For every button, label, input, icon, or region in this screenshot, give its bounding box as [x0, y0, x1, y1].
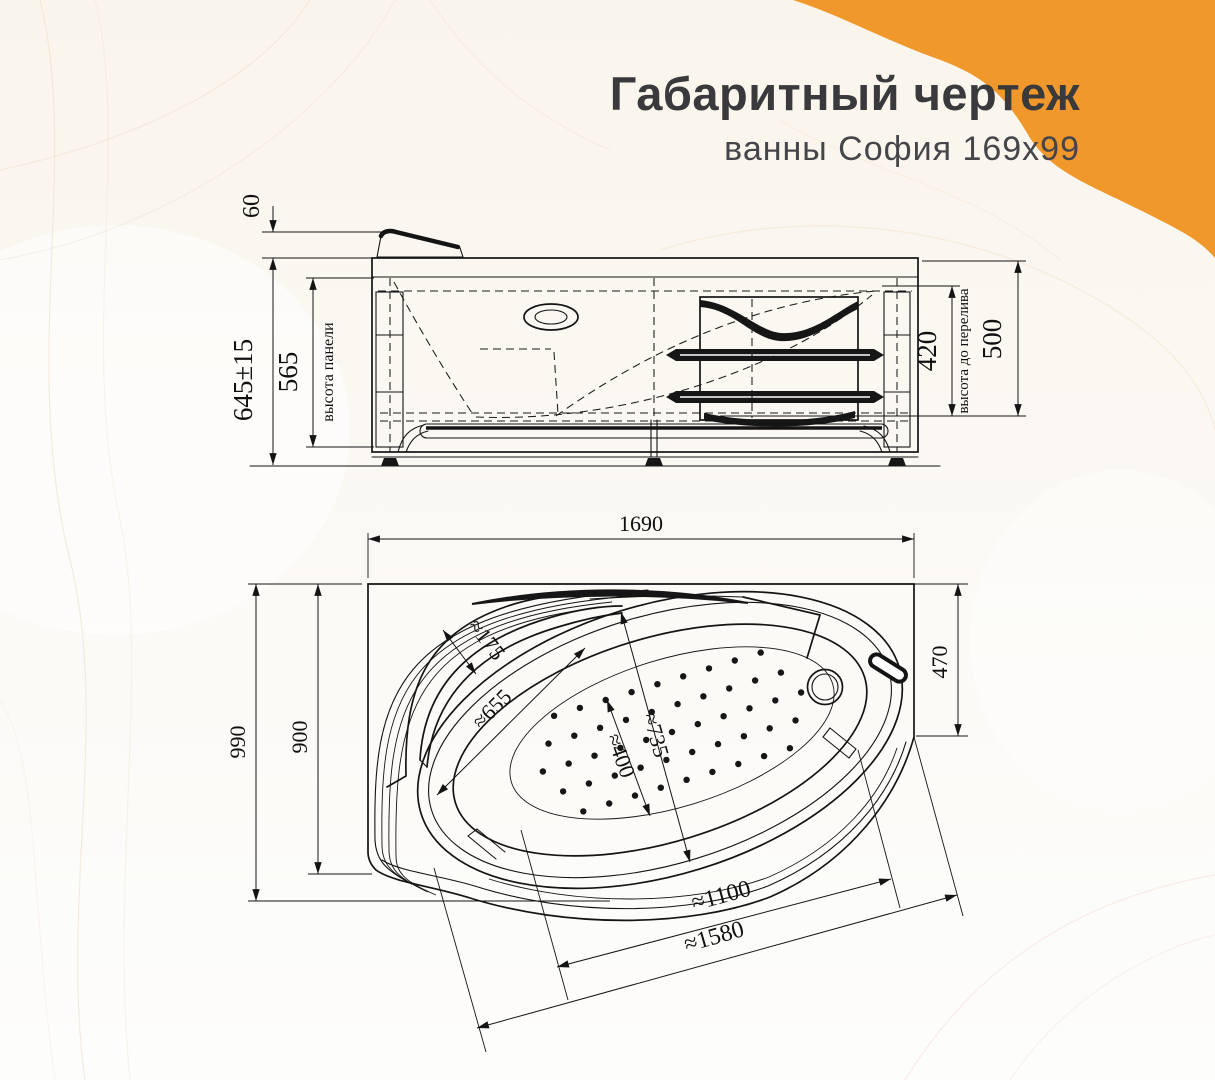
dim-overflow-height: 420 [912, 331, 942, 372]
overflow-side [524, 304, 578, 330]
dim-bowl-width: ≈735 [638, 710, 674, 760]
page-title: Габаритный чертеж [610, 68, 1080, 120]
dim-panel-height-label: высота панели [320, 322, 337, 422]
grab-bar-frame [666, 297, 884, 427]
dim-overflow-height-label: высота до перелива [956, 288, 972, 413]
dim-headrest-height: 60 [239, 194, 265, 218]
headrest-side [377, 231, 463, 257]
dim-panel-height: 565 [273, 352, 303, 393]
waste-channel [398, 424, 890, 452]
dim-end-width: 470 [927, 646, 952, 679]
dim-floor-width: ≈400 [602, 730, 641, 781]
tub-outline [368, 584, 914, 920]
jets-grid [540, 649, 805, 814]
dim-body-width: 900 [287, 721, 312, 754]
dim-length: 1690 [619, 511, 663, 536]
drain [808, 670, 843, 705]
plan-view-drawing: 1690 990 900 470 ≈175 ≈655 ≈735 [225, 511, 968, 1052]
headrest-plan [420, 606, 622, 767]
dim-headrest-length: ≈655 [467, 684, 517, 734]
dim-rim-to-overflow: 500 [977, 319, 1007, 360]
dim-inner-length: ≈1580 [681, 916, 747, 958]
dim-overall-width: 990 [225, 726, 250, 759]
rim-handle [868, 652, 909, 684]
header: Габаритный чертеж ванны София 169x99 [610, 68, 1080, 169]
dim-overall-height: 645±15 [228, 339, 258, 421]
page-subtitle: ванны София 169x99 [610, 130, 1080, 169]
